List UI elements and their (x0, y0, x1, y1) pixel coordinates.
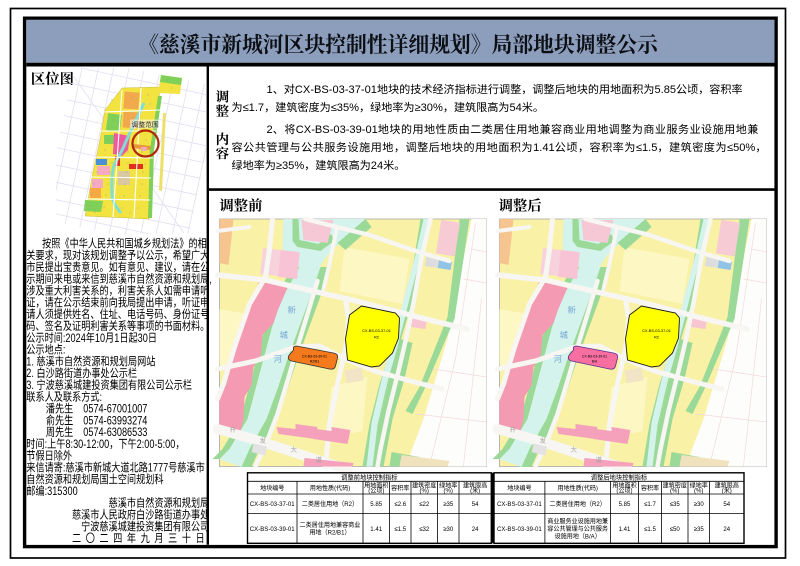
svg-text::315300: :315300 (45, 485, 78, 498)
svg-text:≤50: ≤50 (670, 526, 681, 533)
svg-text:): ) (348, 485, 350, 492)
svg-text::: : (63, 344, 66, 357)
svg-text:≤1.5: ≤1.5 (644, 526, 656, 533)
svg-text:≥35%: ≥35% (276, 160, 304, 172)
svg-text:≤32: ≤32 (419, 526, 430, 533)
svg-text:1.41: 1.41 (619, 526, 631, 533)
svg-text:CX-BS-03-39-01: CX-BS-03-39-01 (302, 355, 327, 359)
svg-text:≤1.5: ≤1.5 (394, 526, 406, 533)
svg-text:CX-BS-03-39-01: CX-BS-03-39-01 (582, 355, 607, 359)
svg-text:B/A: B/A (585, 533, 596, 540)
svg-text:R2: R2 (344, 501, 352, 508)
svg-text:): ) (730, 487, 732, 494)
svg-text:54: 54 (472, 501, 479, 508)
svg-text:≥35: ≥35 (694, 526, 705, 533)
svg-text:R2/B1: R2/B1 (310, 360, 320, 364)
svg-text:≤35: ≤35 (670, 501, 681, 508)
svg-text:(%): (%) (694, 487, 703, 494)
svg-text:24: 24 (723, 526, 730, 533)
svg-text:≤22: ≤22 (419, 501, 430, 508)
svg-text:R2: R2 (374, 335, 379, 340)
svg-text:R2/B1: R2/B1 (328, 529, 345, 536)
svg-text:24: 24 (472, 526, 479, 533)
svg-text:24: 24 (371, 160, 383, 172)
svg-text::: : (45, 438, 48, 451)
svg-text:3.: 3. (26, 379, 34, 392)
svg-text:CX-BS-03-37-01: CX-BS-03-37-01 (295, 84, 377, 96)
svg-text:(%): (%) (444, 487, 453, 494)
svg-text::: : (63, 461, 66, 474)
svg-text:30: 30 (138, 332, 148, 345)
svg-text:1.41: 1.41 (370, 526, 382, 533)
svg-text:10: 10 (95, 332, 105, 345)
svg-text:5.85: 5.85 (370, 501, 382, 508)
svg-text::: : (100, 391, 103, 404)
svg-text:1: 1 (267, 84, 273, 96)
svg-text:(%): (%) (670, 487, 679, 494)
svg-text:,: , (209, 273, 212, 286)
svg-text:): ) (478, 487, 480, 494)
svg-text:CX-BS-03-39-01: CX-BS-03-39-01 (250, 526, 295, 533)
svg-text:): ) (631, 487, 633, 494)
svg-text:0574-63086533: 0574-63086533 (83, 426, 147, 439)
svg-text:R2: R2 (654, 335, 659, 340)
svg-text:CX-BS-03-37-01: CX-BS-03-37-01 (362, 328, 391, 333)
svg-text:≥35: ≥35 (443, 501, 454, 508)
svg-text:≤50%: ≤50% (727, 142, 755, 154)
svg-text:≤2.6: ≤2.6 (394, 501, 406, 508)
svg-text:≤1.7: ≤1.7 (243, 102, 265, 114)
svg-text:): ) (596, 485, 598, 492)
svg-text:0574-63993274: 0574-63993274 (83, 414, 147, 427)
svg-text:(%): (%) (420, 487, 429, 494)
svg-text:CX-BS-03-37-01: CX-BS-03-37-01 (497, 501, 542, 508)
svg-text:2.: 2. (26, 367, 34, 380)
svg-text:1777: 1777 (148, 461, 168, 474)
svg-text:54: 54 (723, 501, 730, 508)
svg-text:R2: R2 (592, 501, 600, 508)
svg-text:CX-BS-03-37-01: CX-BS-03-37-01 (642, 328, 671, 333)
svg-text:): ) (382, 487, 384, 494)
svg-text:8:30-12:00: 8:30-12:00 (65, 438, 109, 451)
svg-text:54: 54 (509, 102, 521, 114)
svg-text:B/A: B/A (592, 360, 598, 364)
svg-text:≥30: ≥30 (694, 501, 705, 508)
svg-text:≤1.7: ≤1.7 (644, 501, 656, 508)
svg-text:≥30: ≥30 (443, 526, 454, 533)
svg-text:≤1.5: ≤1.5 (636, 142, 658, 154)
svg-text:2: 2 (267, 124, 273, 136)
svg-text:≥30%: ≥30% (415, 102, 443, 114)
svg-text:CX-BS-03-39-01: CX-BS-03-39-01 (296, 124, 378, 136)
svg-text:1.41: 1.41 (533, 142, 555, 154)
svg-text::2024: :2024 (63, 332, 86, 345)
svg-text:0574-67001007: 0574-67001007 (83, 403, 147, 416)
svg-text:5.85: 5.85 (654, 84, 676, 96)
svg-text:5.85: 5.85 (619, 501, 631, 508)
svg-text:≤35%: ≤35% (331, 102, 359, 114)
svg-text:CX-BS-03-39-01: CX-BS-03-39-01 (497, 526, 542, 533)
svg-text:1.: 1. (26, 355, 34, 368)
svg-text:1: 1 (114, 332, 119, 345)
svg-text:2:00-5:00: 2:00-5:00 (137, 438, 176, 451)
svg-text:CX-BS-03-37-01: CX-BS-03-37-01 (250, 501, 295, 508)
